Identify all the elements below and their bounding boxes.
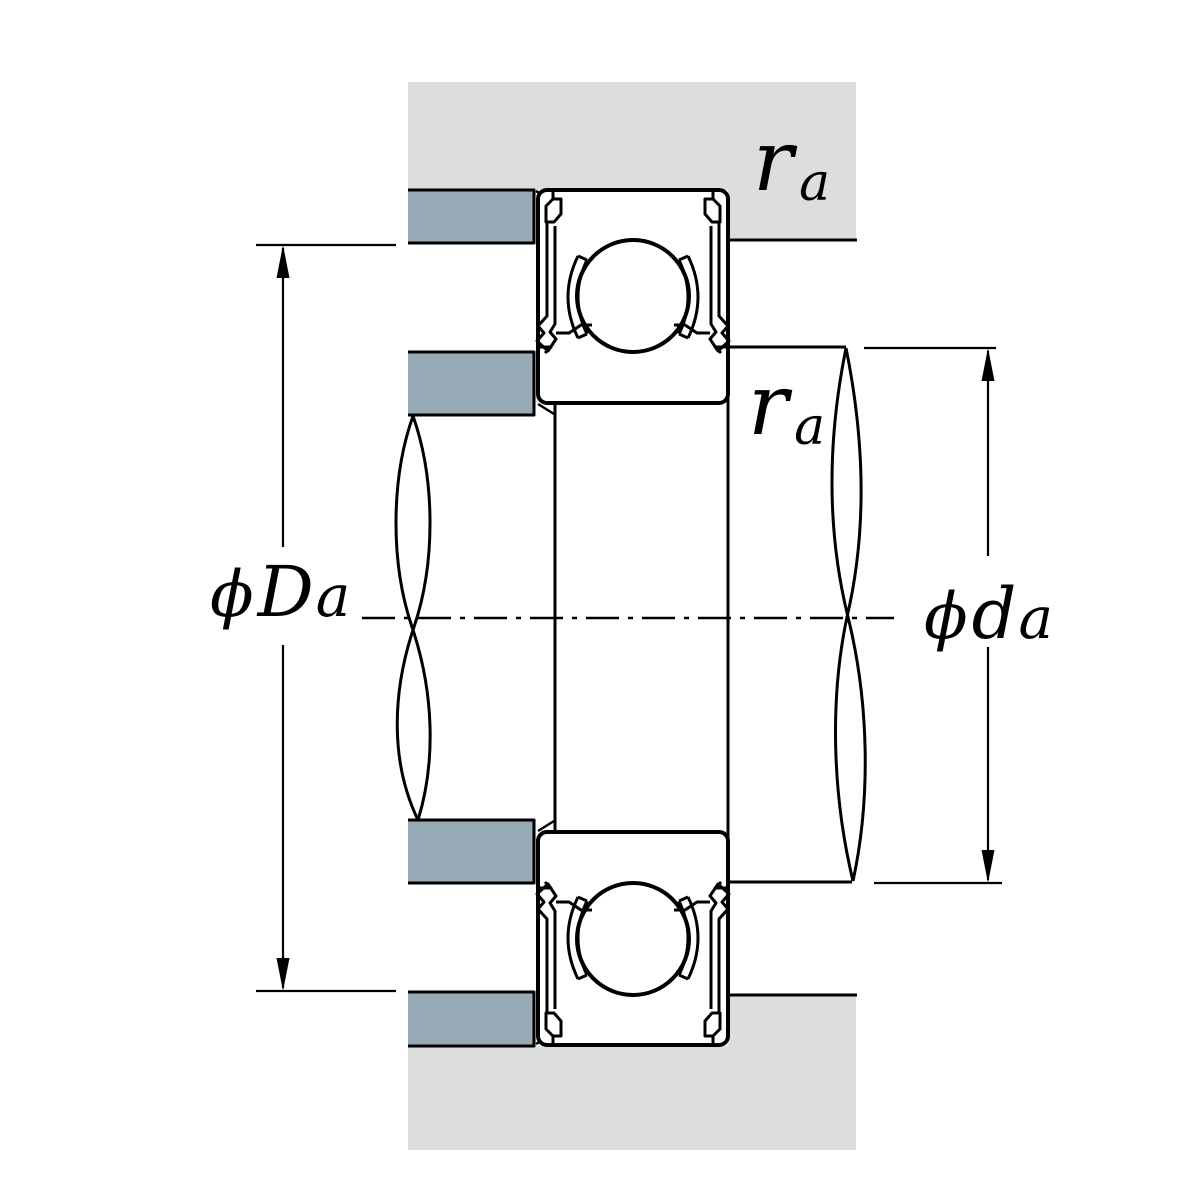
- arrowhead-down: [982, 850, 995, 883]
- arrowhead-up: [277, 245, 290, 278]
- bearing-lower-half: [537, 832, 729, 1045]
- label-fillet-shaft: ra: [748, 356, 825, 457]
- label-phi-da: ϕda: [924, 573, 1053, 655]
- dimension-shaft-abutment: ϕda: [864, 348, 1053, 883]
- shaft-break-right: [832, 348, 865, 881]
- technical-drawing-canvas: ϕDa ϕda ra ra: [0, 0, 1200, 1200]
- arrowhead-down: [277, 958, 290, 991]
- arrowhead-up: [982, 348, 995, 381]
- bearing-upper-half: [537, 190, 729, 403]
- label-phi-Da: ϕDa: [210, 551, 350, 633]
- bearing-mounting-diagram: ϕDa ϕda ra ra: [0, 0, 1200, 1200]
